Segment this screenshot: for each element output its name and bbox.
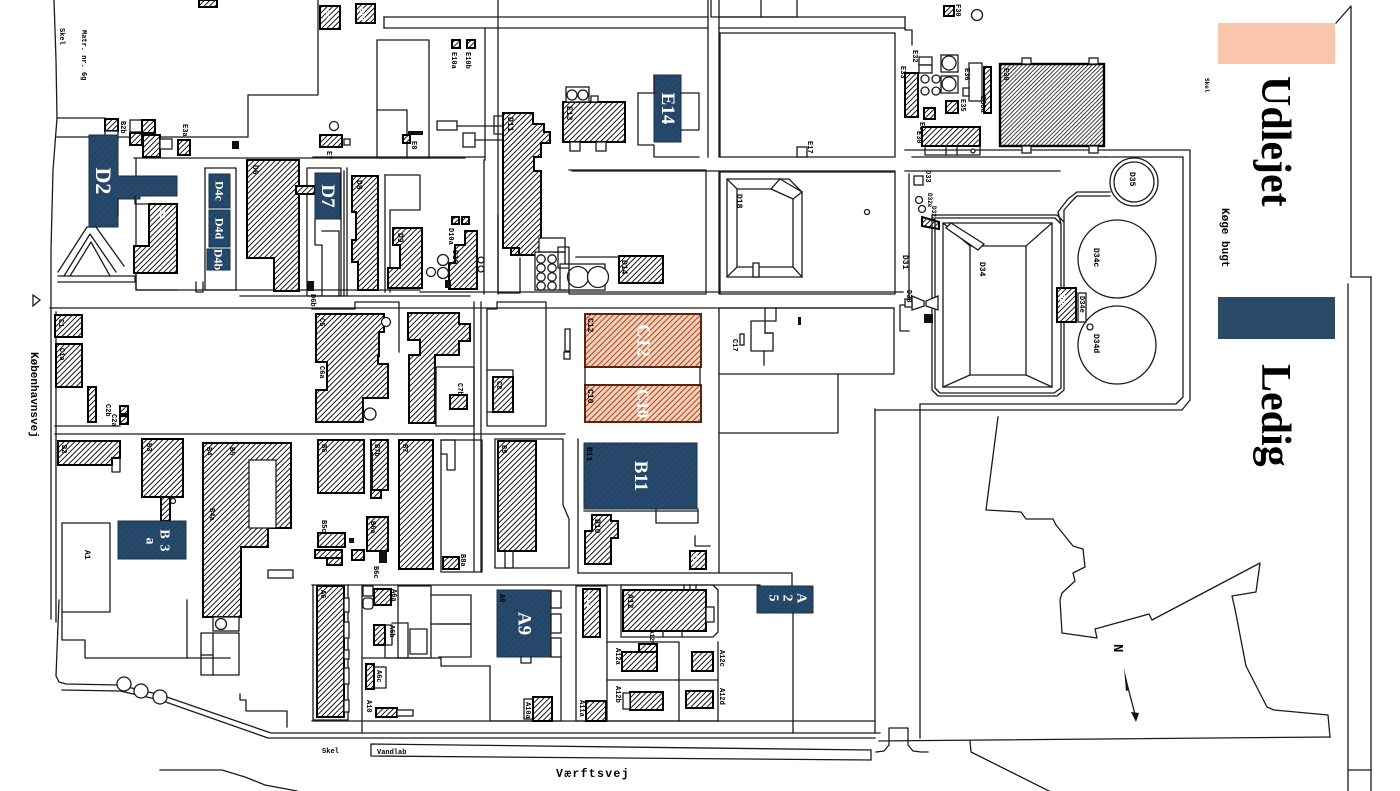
svg-text:Københavnsvej: Københavnsvej <box>27 352 39 438</box>
svg-text:B10: B10 <box>592 519 601 534</box>
svg-text:A1: A1 <box>82 550 91 560</box>
svg-text:Udlejet: Udlejet <box>1252 76 1298 207</box>
svg-text:D3: D3 <box>157 210 165 218</box>
svg-text:A12a: A12a <box>613 648 621 666</box>
svg-text:A12b: A12b <box>613 686 621 703</box>
svg-text:A10a: A10a <box>523 702 531 720</box>
svg-text:E7: E7 <box>324 151 332 159</box>
svg-text:D11: D11 <box>505 117 514 132</box>
svg-text:B4: B4 <box>204 447 212 455</box>
svg-text:F30: F30 <box>953 4 961 17</box>
svg-text:D34c: D34c <box>1091 248 1100 267</box>
svg-text:B: B <box>157 529 172 538</box>
svg-text:D10a: D10a <box>446 228 454 246</box>
svg-text:C12: C12 <box>633 324 654 357</box>
svg-text:3: 3 <box>157 545 172 552</box>
svg-text:B7: B7 <box>400 444 408 452</box>
svg-text:E6: E6 <box>321 10 329 18</box>
svg-text:E36: E36 <box>962 68 970 81</box>
svg-text:A9: A9 <box>497 594 505 602</box>
svg-text:E10a: E10a <box>449 52 457 70</box>
svg-text:D6b: D6b <box>308 294 316 307</box>
svg-text:E33: E33 <box>898 66 906 79</box>
svg-text:C1: C1 <box>56 319 64 327</box>
svg-text:A12: A12 <box>625 594 634 609</box>
svg-text:B9: B9 <box>499 445 507 453</box>
svg-text:A12: A12 <box>648 630 655 641</box>
svg-text:C10: C10 <box>585 389 594 404</box>
svg-text:D36: D36 <box>1057 294 1065 307</box>
svg-text:Ledig: Ledig <box>1252 364 1298 467</box>
svg-text:E32: E32 <box>910 50 918 63</box>
svg-text:B11: B11 <box>630 461 651 492</box>
svg-text:B4a: B4a <box>207 508 215 521</box>
svg-text:a: a <box>143 538 158 545</box>
svg-text:C5: C5 <box>317 318 325 326</box>
svg-text:E3a: E3a <box>180 124 188 137</box>
svg-text:D9: D9 <box>395 233 404 243</box>
svg-text:C7b: C7b <box>455 383 463 396</box>
svg-text:B5c: B5c <box>319 520 327 533</box>
svg-text:D35: D35 <box>1127 172 1136 187</box>
svg-text:A11a: A11a <box>577 700 585 718</box>
svg-text:Skel: Skel <box>57 28 65 45</box>
svg-text:A6c: A6c <box>374 670 382 683</box>
svg-text:C8: C8 <box>494 381 502 389</box>
svg-text:5: 5 <box>766 595 781 602</box>
svg-text:D4c: D4c <box>213 181 227 202</box>
svg-text:D6: D6 <box>250 165 259 175</box>
svg-text:Skel: Skel <box>1203 78 1210 93</box>
svg-text:A6: A6 <box>318 590 326 598</box>
svg-text:E35: E35 <box>958 99 966 112</box>
svg-text:D2: D2 <box>91 168 116 195</box>
svg-text:E38a: E38a <box>978 96 986 114</box>
svg-text:B6: B6 <box>319 444 327 452</box>
svg-text:B2: B2 <box>59 445 67 453</box>
svg-text:E30: E30 <box>914 131 922 144</box>
svg-text:B8a: B8a <box>458 554 466 567</box>
svg-text:A6b: A6b <box>387 625 395 638</box>
svg-text:Værftsvej: Værftsvej <box>556 768 630 781</box>
svg-text:E38: E38 <box>1001 68 1009 81</box>
svg-text:A9: A9 <box>514 612 535 635</box>
svg-text:E14: E14 <box>657 93 678 125</box>
svg-text:B11: B11 <box>584 447 593 462</box>
svg-text:E10b: E10b <box>463 52 471 69</box>
svg-text:D34d: D34d <box>1091 334 1100 353</box>
svg-text:C2a: C2a <box>109 414 117 427</box>
svg-text:C17: C17 <box>730 339 738 352</box>
svg-text:B12: B12 <box>691 554 698 565</box>
svg-text:D18: D18 <box>734 194 743 209</box>
svg-text:C1a: C1a <box>57 348 65 361</box>
svg-text:B7b: B7b <box>372 444 380 457</box>
svg-text:A: A <box>794 593 809 604</box>
svg-text:N: N <box>1109 644 1125 652</box>
svg-text:E13: E13 <box>564 106 573 121</box>
svg-text:B6a: B6a <box>368 521 376 534</box>
svg-text:Vandlab: Vandlab <box>377 749 406 757</box>
svg-text:E10: E10 <box>357 8 365 21</box>
svg-text:D34e: D34e <box>1077 296 1085 313</box>
svg-text:B6c: B6c <box>371 566 379 579</box>
svg-text:D4d: D4d <box>213 218 227 240</box>
svg-text:A6a: A6a <box>389 589 397 602</box>
svg-text:D14: D14 <box>619 260 628 275</box>
svg-text:E8: E8 <box>409 141 417 149</box>
svg-text:Skel: Skel <box>322 748 339 756</box>
svg-text:E17: E17 <box>805 141 813 154</box>
svg-text:C10: C10 <box>634 389 653 418</box>
svg-text:A10: A10 <box>364 700 372 713</box>
svg-text:C12: C12 <box>585 318 594 333</box>
svg-text:D10: D10 <box>450 250 459 265</box>
svg-text:D8: D8 <box>354 180 363 190</box>
svg-text:C6a: C6a <box>317 366 325 379</box>
svg-text:D30: D30 <box>904 290 912 303</box>
svg-text:A11: A11 <box>584 593 593 608</box>
svg-text:Matr. nr. 6g: Matr. nr. 6g <box>79 30 87 80</box>
svg-text:Køge bugt: Køge bugt <box>1218 208 1230 267</box>
svg-text:B3: B3 <box>144 443 152 451</box>
svg-text:2: 2 <box>780 595 795 602</box>
svg-text:B5: B5 <box>227 447 235 455</box>
svg-text:D4b: D4b <box>212 249 226 271</box>
svg-text:D31: D31 <box>900 255 909 270</box>
svg-text:D34: D34 <box>977 262 986 277</box>
svg-text:B2b: B2b <box>118 121 126 134</box>
svg-text:D33: D33 <box>923 170 931 183</box>
svg-text:D7: D7 <box>317 184 338 208</box>
